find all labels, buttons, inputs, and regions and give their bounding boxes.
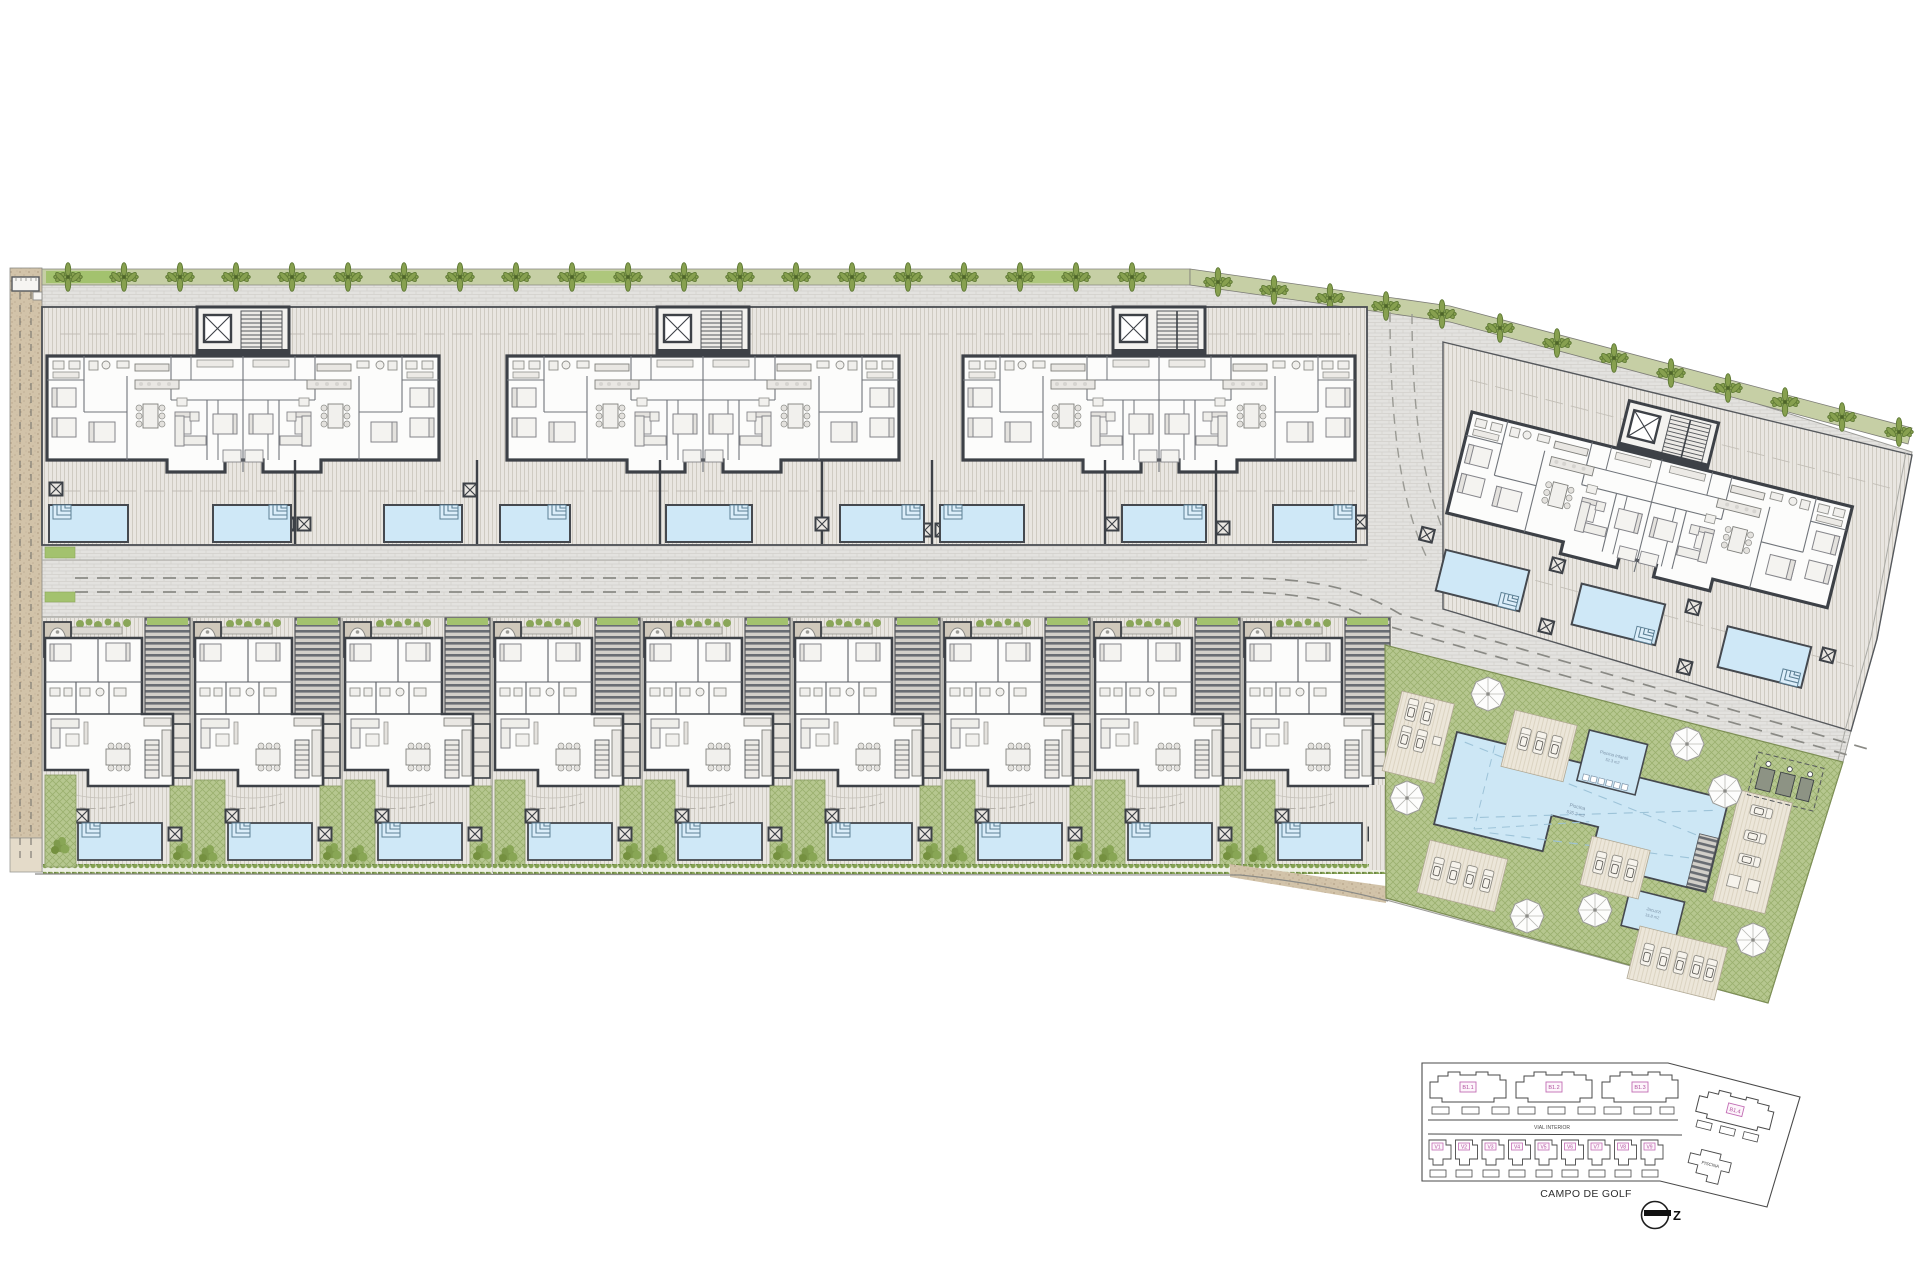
svg-text:V1: V1	[1434, 1145, 1440, 1151]
svg-text:VIAL INTERIOR: VIAL INTERIOR	[1534, 1125, 1570, 1131]
svg-text:V8: V8	[1620, 1145, 1626, 1151]
svg-text:V5: V5	[1540, 1145, 1546, 1151]
svg-text:CAMPO DE GOLF: CAMPO DE GOLF	[1540, 1188, 1631, 1200]
svg-text:B1.1: B1.1	[1462, 1085, 1473, 1091]
svg-text:V7: V7	[1593, 1145, 1599, 1151]
svg-text:V2: V2	[1461, 1145, 1467, 1151]
svg-text:B1.3: B1.3	[1634, 1085, 1645, 1091]
svg-text:Z: Z	[1673, 1208, 1681, 1223]
svg-text:B1.2: B1.2	[1548, 1085, 1559, 1091]
svg-text:V4: V4	[1514, 1145, 1520, 1151]
svg-text:V6: V6	[1567, 1145, 1573, 1151]
svg-text:V3: V3	[1487, 1145, 1493, 1151]
svg-text:V9: V9	[1646, 1145, 1652, 1151]
